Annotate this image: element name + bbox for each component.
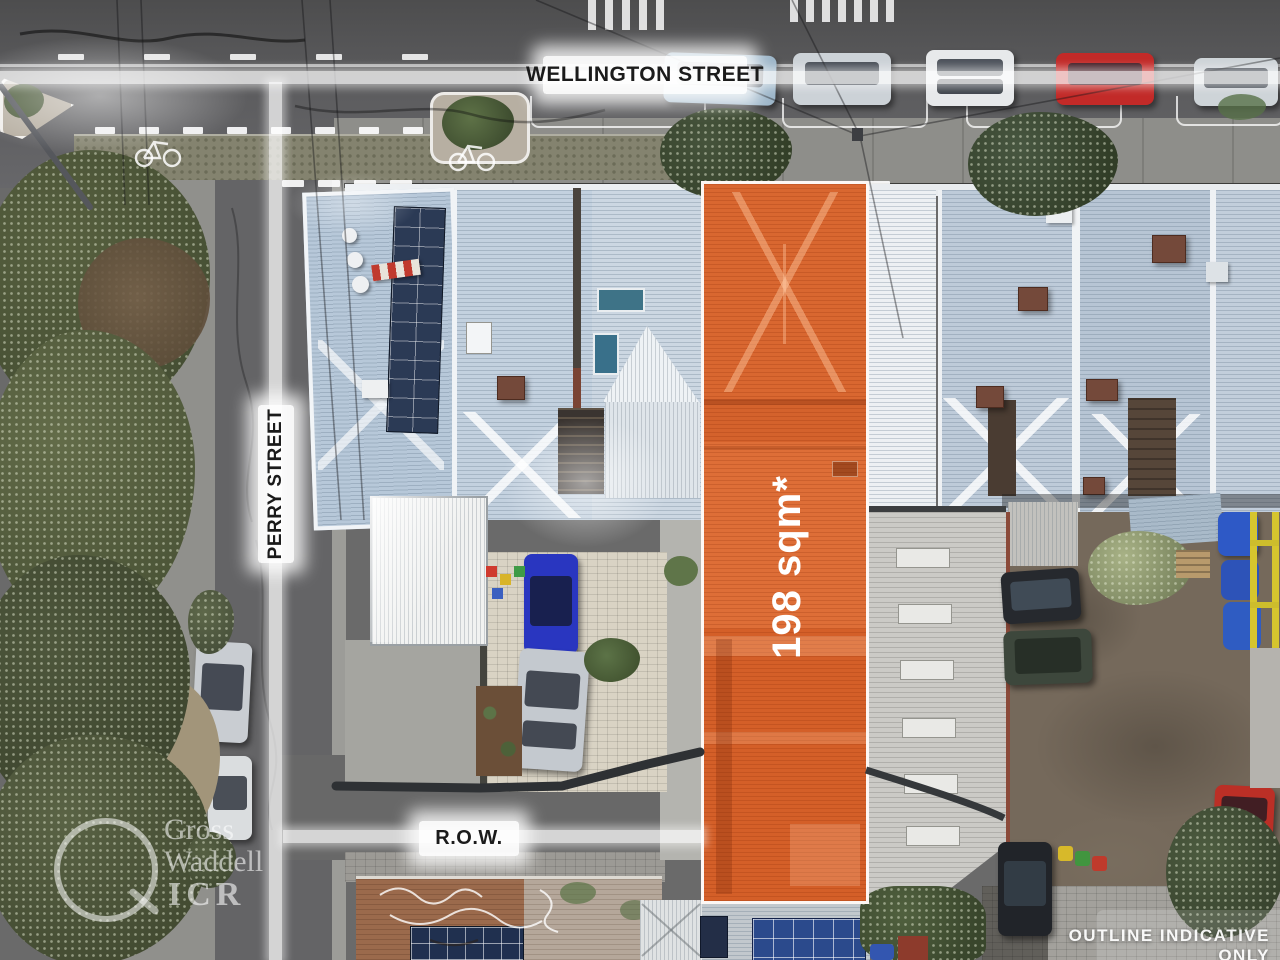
parking-mark [870,0,878,22]
pallet-stack [1176,550,1210,578]
chimney [497,376,525,400]
crossing-stud [183,127,203,134]
chimney [1083,477,1105,495]
watermark-word-3: ICR [168,878,245,912]
crossing-stud [95,127,115,134]
skylight [466,322,492,354]
parked-car [524,554,578,654]
watermark-word-1: Gross [164,814,234,846]
lane-dash [144,54,170,60]
lot-area-label: 198 sqm* [764,407,810,727]
ac-unit [362,380,388,398]
lane-dash [402,54,428,60]
crossing-stud [227,127,247,134]
warehouse-skylight [904,774,958,794]
warehouse-skylight [896,548,950,568]
toy-block [500,574,511,585]
warehouse-skylight [902,718,956,738]
car-glass [522,720,577,750]
lane-dash [230,54,256,60]
car-glass [1010,578,1071,611]
lane-dash [58,54,84,60]
wellington-street-label: WELLINGTON STREET [543,56,747,94]
parked-car [512,648,590,773]
parking-mark [639,0,647,30]
scaffold-bar [1250,602,1279,608]
car-glass [213,776,246,810]
car-glass [1014,637,1082,674]
warehouse-gutter [866,506,1006,513]
aerial-photo: 198 sqm* WELLINGTON STREET PERRY STREET … [0,0,1280,960]
lot-seam [704,399,866,405]
roof-vent [352,276,369,293]
shed-roof [640,900,702,960]
crossing-stud [403,127,423,134]
car-glass [525,670,581,710]
parking-mark [838,0,846,22]
party-wall-gap [988,400,1016,496]
ac-unit [1206,262,1228,282]
roof-ridge [1072,190,1080,512]
planter-box [476,686,522,776]
chimney [976,386,1004,408]
parking-mark [656,0,664,30]
parking-mark [588,0,596,30]
watermark-ring-icon [54,818,158,922]
parking-mark [806,0,814,22]
crossing-stud [359,127,379,134]
chimney [1018,287,1048,311]
concrete-path [1250,648,1280,788]
car-glass [1004,861,1045,906]
parked-car [1000,567,1081,624]
solar-panel-array [752,918,866,960]
watermark-word-2: Waddell [164,846,263,878]
lot-ridge [783,244,786,344]
wheelie-bin [1092,856,1107,871]
parking-mark [822,0,830,22]
skylight-window [593,333,619,375]
car-glass [530,576,571,626]
roof-panel [1216,190,1280,512]
roof-vent [347,252,363,268]
warehouse-skylight [900,660,954,680]
toy-block [514,566,525,577]
warehouse-skylight [898,604,952,624]
parking-mark [622,0,630,30]
lot-dark-strip [716,639,732,894]
roof-panel [868,190,936,516]
crossing-stud [318,180,340,187]
solar-panel-array [700,916,728,958]
outline-disclaimer-label: OUTLINE INDICATIVE ONLY [1020,926,1270,960]
parked-car [1003,628,1093,685]
rear-wing-roof [605,402,700,498]
roof-vent [342,228,357,243]
toy-block [492,588,503,599]
crossing-stud [282,180,304,187]
parking-mark [605,0,613,30]
chimney [1152,235,1186,263]
wheelie-bin [1075,851,1090,866]
crossing-stud [315,127,335,134]
toy-block [486,566,497,577]
wheelie-bin [1058,846,1073,861]
skylight-window [597,288,645,312]
parked-car [998,842,1052,936]
roof-seam-rust [573,188,581,368]
solar-panel-array [410,926,524,960]
parking-mark [790,0,798,22]
party-wall-gap [1128,398,1176,496]
lot-light-patch [790,824,860,886]
pergola-void [558,408,604,494]
lean-to-roof [1008,502,1078,566]
rusty-box [898,936,928,960]
backyard-concrete [345,640,480,790]
row-label: R.O.W. [419,821,519,856]
chimney [1086,379,1118,401]
warehouse-skylight [906,826,960,846]
tarp-bit [870,944,894,960]
parking-mark [886,0,894,22]
scaffold-bar [1250,540,1279,546]
lot-skylight [832,461,858,477]
tactile-crossing [74,134,700,180]
lane-dash [316,54,342,60]
parking-mark [854,0,862,22]
perry-street-label: PERRY STREET [258,405,294,563]
crossing-stud [139,127,159,134]
solar-panel-array [386,206,446,434]
shed-glare [370,496,484,642]
